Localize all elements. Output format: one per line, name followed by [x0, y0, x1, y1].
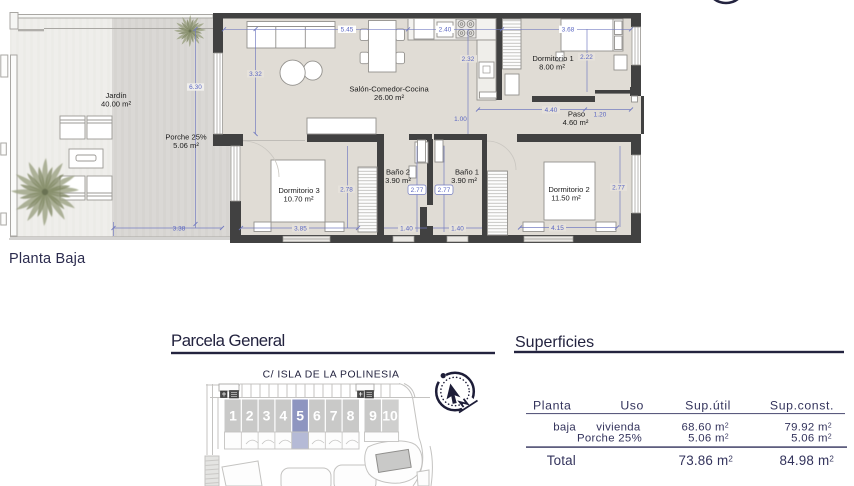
svg-text:1.40: 1.40	[400, 225, 413, 232]
svg-text:11.50 m²: 11.50 m²	[551, 194, 581, 203]
svg-text:8: 8	[347, 408, 355, 424]
svg-text:5.06 m2: 5.06 m2	[688, 433, 729, 445]
svg-text:3.90 m²: 3.90 m²	[385, 176, 411, 185]
svg-text:4.40: 4.40	[545, 107, 558, 114]
svg-text:6.30: 6.30	[189, 84, 202, 91]
svg-text:2.78: 2.78	[340, 186, 353, 193]
svg-text:5.06 m²: 5.06 m²	[173, 141, 199, 150]
svg-text:4: 4	[279, 408, 287, 424]
svg-text:2.77: 2.77	[612, 184, 625, 191]
svg-text:84.98 m2: 84.98 m2	[780, 453, 835, 468]
svg-text:10: 10	[382, 408, 398, 424]
svg-text:Sup.útil: Sup.útil	[685, 398, 731, 412]
svg-text:4.60 m²: 4.60 m²	[563, 118, 589, 127]
svg-text:3.85: 3.85	[294, 225, 307, 232]
svg-text:5.45: 5.45	[341, 26, 354, 33]
svg-text:2.40: 2.40	[439, 26, 452, 33]
svg-text:40.00 m²: 40.00 m²	[101, 100, 131, 109]
svg-text:9: 9	[369, 408, 377, 424]
svg-text:73.86 m2: 73.86 m2	[679, 453, 734, 468]
svg-text:8.00 m²: 8.00 m²	[539, 63, 565, 72]
svg-text:1: 1	[229, 408, 237, 424]
svg-text:Total: Total	[547, 453, 576, 468]
svg-text:1.40: 1.40	[451, 225, 464, 232]
svg-text:baja: baja	[553, 421, 576, 433]
svg-text:Parcela General: Parcela General	[171, 331, 285, 350]
svg-text:2.77: 2.77	[411, 187, 424, 194]
svg-text:1.00: 1.00	[454, 116, 467, 123]
svg-text:3.90 m²: 3.90 m²	[451, 176, 477, 185]
svg-text:Planta: Planta	[533, 398, 571, 412]
svg-text:Planta Baja: Planta Baja	[9, 251, 86, 267]
svg-text:Sup.const.: Sup.const.	[770, 398, 834, 412]
svg-text:26.00 m²: 26.00 m²	[374, 93, 404, 102]
svg-text:5.06 m2: 5.06 m2	[791, 433, 832, 445]
svg-text:7: 7	[330, 408, 338, 424]
svg-text:4.15: 4.15	[551, 225, 564, 232]
svg-text:2.22: 2.22	[580, 54, 593, 61]
svg-text:vivienda: vivienda	[596, 421, 641, 433]
svg-text:Porche 25%: Porche 25%	[577, 433, 642, 445]
svg-text:3.38: 3.38	[173, 225, 186, 232]
svg-text:68.60 m2: 68.60 m2	[682, 421, 729, 433]
svg-text:2.77: 2.77	[438, 187, 451, 194]
svg-text:2.32: 2.32	[462, 56, 475, 63]
svg-text:Superficies: Superficies	[515, 334, 594, 351]
svg-text:C/ ISLA DE LA POLINESIA: C/ ISLA DE LA POLINESIA	[263, 370, 400, 381]
svg-text:Uso: Uso	[620, 398, 644, 412]
svg-text:10.70 m²: 10.70 m²	[284, 195, 314, 204]
svg-text:5: 5	[296, 408, 304, 424]
svg-text:3.68: 3.68	[562, 26, 575, 33]
svg-text:1.20: 1.20	[594, 112, 607, 119]
svg-text:6: 6	[313, 408, 321, 424]
svg-text:3: 3	[263, 408, 271, 424]
svg-text:79.92 m2: 79.92 m2	[785, 421, 832, 433]
svg-text:3.32: 3.32	[249, 71, 262, 78]
svg-text:2: 2	[246, 408, 254, 424]
